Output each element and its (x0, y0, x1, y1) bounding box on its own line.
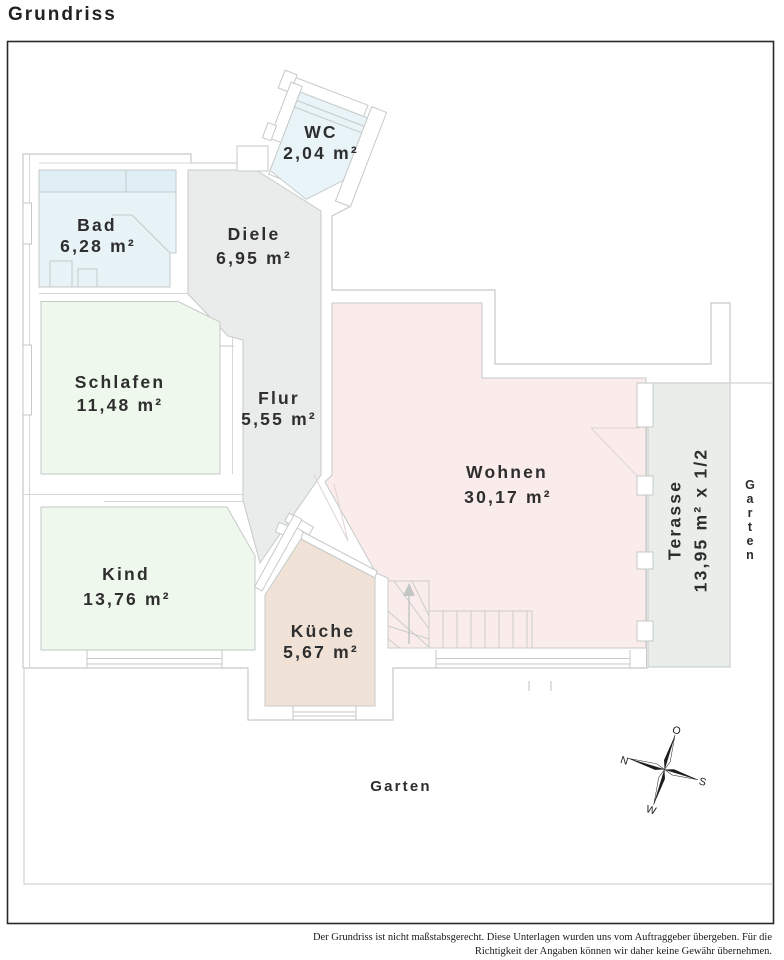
svg-text:Schlafen: Schlafen (75, 372, 166, 392)
svg-text:30,17 m²: 30,17 m² (464, 487, 552, 507)
svg-text:Terasse: Terasse (665, 480, 685, 560)
svg-text:5,67 m²: 5,67 m² (283, 642, 359, 662)
svg-text:5,55 m²: 5,55 m² (241, 409, 317, 429)
svg-text:Richtigkeit der Angaben können: Richtigkeit der Angaben können wir daher… (475, 946, 772, 957)
svg-text:r: r (748, 506, 753, 520)
svg-text:Küche: Küche (291, 621, 355, 641)
svg-text:6,28 m²: 6,28 m² (60, 236, 136, 256)
svg-text:Wohnen: Wohnen (466, 462, 548, 482)
svg-text:6,95 m²: 6,95 m² (216, 248, 292, 268)
svg-text:Der Grundriss ist nicht maßsta: Der Grundriss ist nicht maßstabsgerecht.… (313, 932, 772, 943)
svg-text:Garten: Garten (370, 778, 432, 795)
svg-text:a: a (747, 492, 755, 506)
svg-text:G: G (745, 478, 755, 492)
svg-text:Diele: Diele (228, 224, 281, 244)
svg-text:2,04 m²: 2,04 m² (283, 143, 359, 163)
svg-text:Kind: Kind (102, 564, 150, 584)
svg-text:Flur: Flur (258, 388, 300, 408)
svg-text:11,48 m²: 11,48 m² (77, 395, 164, 415)
svg-text:n: n (746, 548, 754, 562)
svg-text:Grundriss: Grundriss (8, 4, 117, 25)
svg-text:13,76 m²: 13,76 m² (83, 589, 171, 609)
svg-text:WC: WC (304, 122, 338, 142)
svg-text:e: e (747, 534, 754, 548)
svg-text:Bad: Bad (77, 215, 117, 235)
svg-text:13,95 m² x 1/2: 13,95 m² x 1/2 (691, 448, 711, 593)
